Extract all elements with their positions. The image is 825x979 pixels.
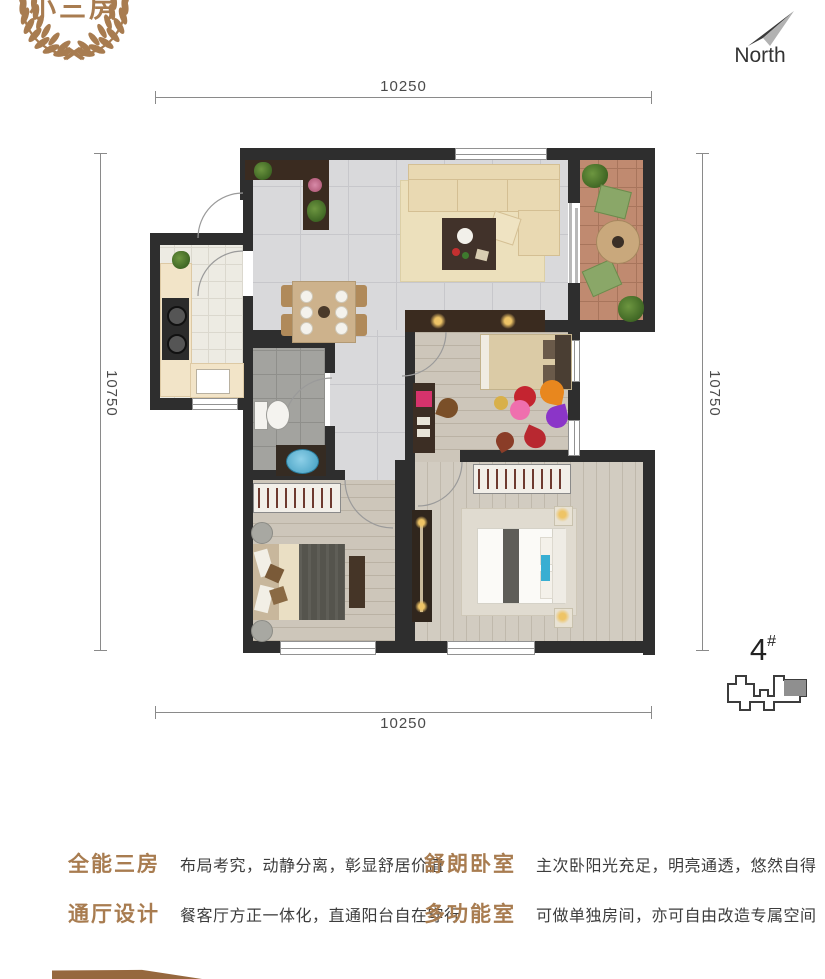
dimension-line-left bbox=[100, 153, 101, 650]
decor-bowl bbox=[308, 178, 322, 192]
burner bbox=[167, 306, 187, 326]
flowers bbox=[452, 248, 460, 256]
laurel-wreath-logo: 小三房 bbox=[12, 0, 136, 62]
feature-item: 全能三房 布局考究，动静分离，彰显舒居价值 bbox=[68, 848, 444, 878]
dimension-right: 10750 bbox=[706, 370, 723, 436]
tv-screen bbox=[420, 520, 423, 612]
dish bbox=[457, 228, 473, 244]
burner bbox=[167, 334, 187, 354]
tick bbox=[696, 153, 709, 154]
feature-item: 舒朗卧室 主次卧阳光充足，明亮通透，悠然自得 bbox=[424, 848, 817, 878]
plate bbox=[300, 290, 313, 303]
toilet-bowl bbox=[266, 400, 290, 430]
bed-headboard bbox=[552, 529, 566, 603]
floor-cushion bbox=[494, 396, 508, 410]
desk bbox=[413, 383, 435, 453]
unit-suffix: # bbox=[767, 633, 776, 650]
bedside-lamp bbox=[555, 507, 570, 522]
ceiling-light bbox=[430, 313, 446, 329]
tick bbox=[155, 706, 156, 719]
centerpiece bbox=[318, 306, 330, 318]
sofa-seam bbox=[457, 179, 458, 211]
hanging-clothes bbox=[478, 469, 566, 489]
feature-title: 舒朗卧室 bbox=[424, 848, 516, 878]
sofa-seam bbox=[507, 179, 508, 211]
wash-basin bbox=[286, 449, 319, 474]
kitchen-sink bbox=[196, 369, 230, 394]
north-arrow-icon bbox=[748, 10, 796, 48]
plate bbox=[335, 306, 348, 319]
dimension-bottom: 10250 bbox=[340, 715, 467, 732]
building-footprint-icon bbox=[716, 668, 818, 718]
tick bbox=[94, 650, 107, 651]
dining-table bbox=[292, 281, 356, 343]
papers bbox=[417, 417, 430, 425]
bedroom1-bed bbox=[253, 544, 345, 620]
stove bbox=[162, 298, 189, 360]
bedside-lamp bbox=[555, 609, 570, 624]
unit-number: 4 bbox=[750, 632, 767, 667]
feature-item: 通厅设计 餐客厅方正一体化，直通阳台自在穿行 bbox=[68, 898, 461, 928]
feature-desc: 可做单独房间，亦可自由改造专属空间 bbox=[536, 902, 817, 926]
bedroom1-wardrobe bbox=[253, 483, 341, 513]
plate bbox=[335, 322, 348, 335]
dimension-line-bottom bbox=[155, 712, 652, 713]
unit-marker: 4# bbox=[728, 632, 798, 668]
dimension-line-right bbox=[702, 153, 703, 650]
pillow bbox=[543, 340, 555, 359]
feature-title: 多功能室 bbox=[424, 898, 516, 928]
decorative-wedge bbox=[52, 966, 202, 979]
tick bbox=[155, 91, 156, 104]
floor-plan-page: 小三房 North 10250 10250 10750 10750 bbox=[0, 0, 825, 979]
teapot bbox=[612, 236, 624, 248]
dimension-line-top bbox=[155, 97, 652, 98]
tick bbox=[651, 706, 652, 719]
bed-blanket bbox=[299, 544, 345, 620]
flowers bbox=[462, 252, 469, 259]
sofa-chaise bbox=[518, 210, 560, 256]
bed-runner bbox=[503, 529, 519, 603]
tv-feature-wall bbox=[405, 310, 545, 332]
tick bbox=[94, 153, 107, 154]
dimension-top: 10250 bbox=[340, 78, 467, 95]
master-wardrobe bbox=[473, 464, 571, 494]
balcony-table bbox=[596, 220, 640, 264]
feature-desc: 餐客厅方正一体化，直通阳台自在穿行 bbox=[180, 902, 461, 926]
logo-text: 小三房 bbox=[12, 0, 136, 25]
feature-desc: 布局考究，动静分离，彰显舒居价值 bbox=[180, 852, 444, 876]
bed-sheet bbox=[481, 335, 489, 389]
tick bbox=[651, 91, 652, 104]
pouf bbox=[251, 620, 273, 642]
floor-cushion bbox=[510, 400, 530, 420]
plate bbox=[300, 306, 313, 319]
sofa-seam bbox=[409, 179, 559, 180]
dimension-left: 10750 bbox=[103, 370, 120, 436]
feature-item: 多功能室 可做单独房间，亦可自由改造专属空间 bbox=[424, 898, 817, 928]
cabinet-light bbox=[415, 600, 428, 613]
papers bbox=[417, 429, 430, 437]
hanging-clothes bbox=[258, 488, 336, 508]
sofa bbox=[408, 164, 560, 212]
bed-sheet bbox=[279, 544, 299, 620]
coffee-table bbox=[442, 218, 496, 270]
book bbox=[475, 249, 489, 262]
feature-title: 通厅设计 bbox=[68, 898, 160, 928]
cabinet-light bbox=[415, 516, 428, 529]
ceiling-light bbox=[500, 313, 516, 329]
floor-plan bbox=[150, 148, 655, 660]
pouf bbox=[251, 522, 273, 544]
feature-desc: 主次卧阳光充足，明亮通透，悠然自得 bbox=[536, 852, 817, 876]
accent-pillow bbox=[541, 555, 550, 581]
bedroom1-dresser bbox=[349, 556, 365, 608]
plate bbox=[335, 290, 348, 303]
feature-title: 全能三房 bbox=[68, 848, 160, 878]
master-bed bbox=[477, 528, 565, 604]
unit-location-highlight bbox=[784, 680, 806, 696]
tick bbox=[696, 650, 709, 651]
artwork bbox=[416, 391, 432, 407]
north-label: North bbox=[722, 44, 798, 68]
plate bbox=[300, 322, 313, 335]
